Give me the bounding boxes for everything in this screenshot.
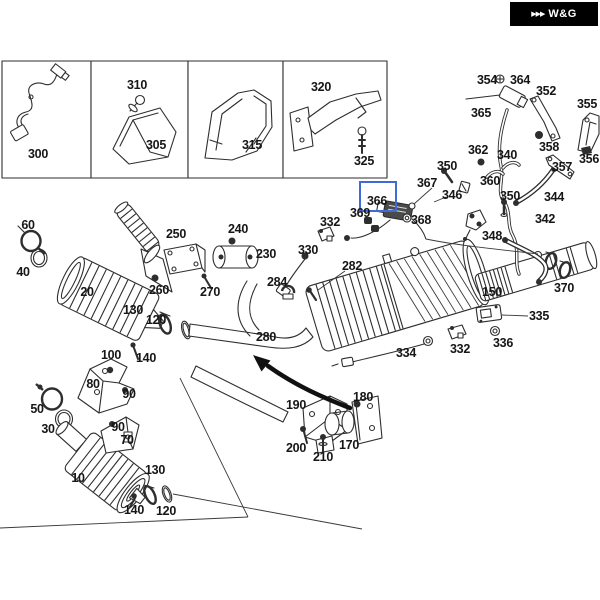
rotation-arrow bbox=[253, 355, 350, 408]
bracket-348-drawing bbox=[466, 210, 486, 230]
strap-352-drawing bbox=[530, 96, 560, 141]
grommet-369b-drawing bbox=[371, 225, 379, 232]
bolt-90a-drawing bbox=[122, 387, 128, 393]
bracket-80-100-drawing bbox=[78, 342, 138, 413]
probe-365-line bbox=[466, 95, 500, 99]
nut-358-drawing bbox=[535, 131, 543, 139]
wg-logo-text: W&G bbox=[548, 9, 576, 20]
bolt-350a-drawing bbox=[445, 172, 452, 182]
rubber-mount-230-drawing bbox=[213, 246, 258, 268]
right-brackets-drawing bbox=[441, 96, 599, 241]
screw-200-drawing bbox=[300, 426, 306, 432]
underbody-pipe-drawing bbox=[191, 366, 288, 422]
hose-344-drawing bbox=[517, 170, 553, 202]
bolt-140-front-drawing bbox=[130, 342, 135, 347]
gasket-40-drawing bbox=[31, 249, 47, 267]
triple-chevron-icon: ▶▶▶ bbox=[531, 11, 544, 18]
bracket-250-drawing bbox=[164, 244, 202, 274]
highlighted-part-box bbox=[359, 181, 397, 212]
nut-260-drawing bbox=[152, 275, 159, 282]
inset-box-300 bbox=[2, 61, 91, 178]
clamp-130-rear-drawing bbox=[142, 484, 158, 505]
grommet-336-drawing bbox=[491, 327, 500, 336]
bolt-325-drawing bbox=[358, 127, 366, 135]
rear-pipe-150-drawing bbox=[474, 240, 599, 301]
nut-100-drawing bbox=[107, 367, 113, 373]
grommet-369a-drawing bbox=[364, 217, 372, 224]
gasket-ring-120-rear-drawing bbox=[160, 485, 173, 504]
bracket-70-drawing bbox=[101, 417, 139, 453]
detail-triangle-lines bbox=[0, 378, 362, 529]
wg-logo-badge: ▶▶▶ W&G bbox=[510, 2, 598, 26]
sensor-334-drawing bbox=[424, 337, 433, 346]
nut-362-drawing bbox=[478, 159, 485, 166]
bolt-90b-drawing bbox=[109, 421, 115, 427]
pressure-sensor-364-drawing bbox=[466, 75, 529, 109]
grommet-368-drawing bbox=[403, 214, 411, 222]
clamp-50-drawing bbox=[36, 384, 62, 410]
nut-240-drawing bbox=[229, 238, 236, 245]
nut-180-drawing bbox=[354, 401, 361, 408]
parts-diagram: 3003103053153203253543643653523553583623… bbox=[0, 0, 600, 600]
exhaust-diagram-drawing bbox=[0, 0, 600, 600]
clip-346-drawing bbox=[459, 181, 470, 193]
module-335-drawing bbox=[476, 304, 502, 322]
clamp-130-front-drawing bbox=[157, 313, 173, 335]
